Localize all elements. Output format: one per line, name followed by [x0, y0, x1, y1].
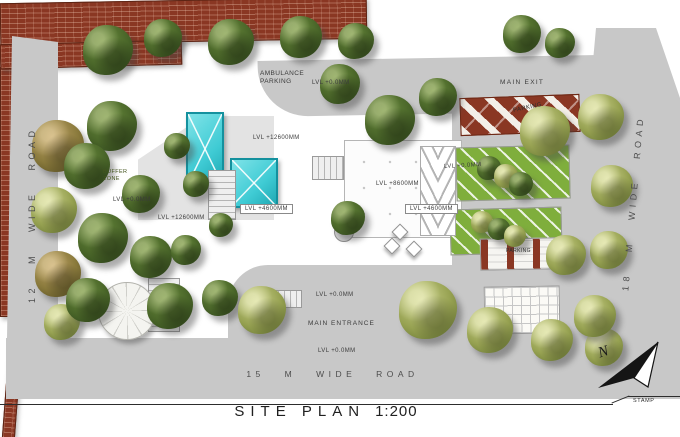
road-left-label: 12 M WIDE ROAD — [27, 133, 37, 303]
tree — [338, 23, 374, 59]
exit-road-bulge — [458, 58, 498, 98]
tree — [280, 16, 322, 58]
stamp-label: STAMP — [633, 398, 655, 404]
tree — [130, 236, 172, 278]
tree — [31, 187, 77, 233]
tree — [365, 95, 415, 145]
tree — [209, 213, 233, 237]
sheet-title-text: SITE PLAN — [234, 403, 365, 420]
main-exit-label: MAIN EXIT — [500, 79, 544, 86]
level-top-drive: LVL +0.0MM — [312, 80, 350, 86]
main-entrance-label: MAIN ENTRANCE — [308, 320, 375, 327]
tree — [83, 25, 133, 75]
tree — [78, 213, 128, 263]
level-entrance-court: LVL +0.0MM — [316, 292, 354, 298]
planter-diamond-2 — [384, 238, 401, 255]
road-bottom-label: 15 M WIDE ROAD — [235, 369, 430, 379]
tree — [503, 15, 541, 53]
north-letter: N — [595, 343, 611, 362]
planter-diamond-3 — [406, 241, 423, 258]
tree — [208, 19, 254, 65]
stairs-core-mid — [312, 156, 344, 180]
level-terrace-mid: LVL +8600MM — [376, 181, 419, 187]
level-roof-left-wing: LVL +12600MM — [158, 215, 205, 221]
tree — [147, 283, 193, 329]
level-podium-left: LVL +4600MM — [240, 204, 293, 214]
title-separator-right — [628, 396, 680, 397]
level-garden: LVL +0.0MM — [113, 197, 151, 203]
sheet-scale: 1:200 — [375, 403, 418, 420]
site-plan-sheet: AMBULANCE PARKING LVL +0.0MM MAIN EXIT P… — [0, 0, 680, 437]
ambulance-parking-label: AMBULANCE PARKING — [260, 70, 308, 86]
tree — [545, 28, 575, 58]
parking-row-label: PARKING — [506, 248, 531, 254]
level-roof-upper: LVL +12600MM — [253, 135, 300, 141]
buffer-zone-label: BUFFER ZONE — [103, 169, 131, 183]
level-podium-right: LVL +4600MM — [405, 204, 458, 214]
tree — [171, 235, 201, 265]
level-entrance-road: LVL +0.0MM — [318, 348, 356, 354]
skylight-square — [230, 158, 278, 208]
north-arrow: N — [592, 334, 668, 392]
ramp-chevron — [420, 146, 456, 236]
sheet-title: SITE PLAN1:200 — [206, 403, 446, 420]
